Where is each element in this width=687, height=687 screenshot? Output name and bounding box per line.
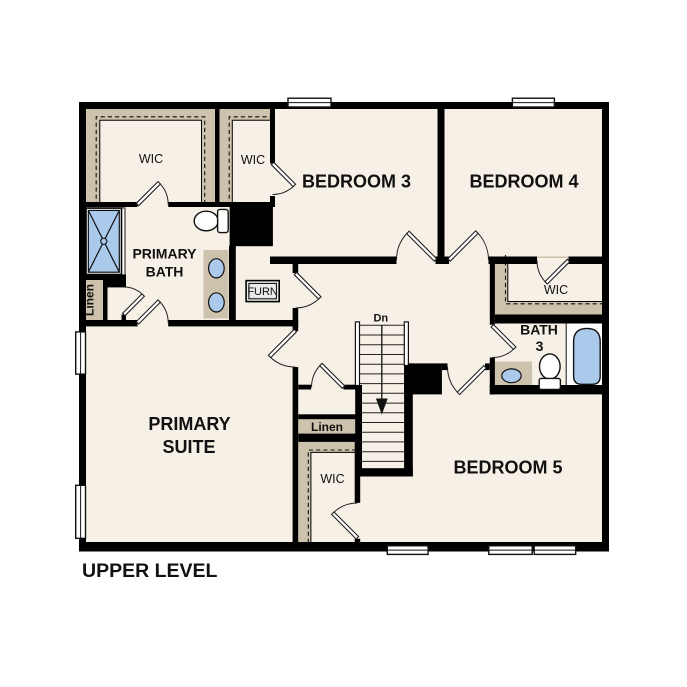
svg-text:SUITE: SUITE [162,437,215,457]
svg-text:WIC: WIC [544,283,568,297]
svg-text:Linen: Linen [83,284,97,316]
svg-text:BEDROOM 3: BEDROOM 3 [302,172,411,192]
svg-text:Linen: Linen [311,420,343,434]
svg-text:UPPER LEVEL: UPPER LEVEL [82,560,218,582]
svg-text:WIC: WIC [320,472,344,486]
svg-text:WIC: WIC [241,153,265,167]
svg-text:3: 3 [536,338,544,354]
svg-text:BATH: BATH [520,322,558,338]
svg-text:BEDROOM 5: BEDROOM 5 [453,458,562,478]
svg-text:PRIMARY: PRIMARY [132,246,197,262]
svg-text:WIC: WIC [139,152,163,166]
svg-text:BATH: BATH [146,264,184,280]
svg-text:FURN: FURN [247,286,278,298]
svg-text:Dn: Dn [373,313,388,325]
svg-text:PRIMARY: PRIMARY [148,414,230,434]
svg-text:BEDROOM 4: BEDROOM 4 [469,172,578,192]
